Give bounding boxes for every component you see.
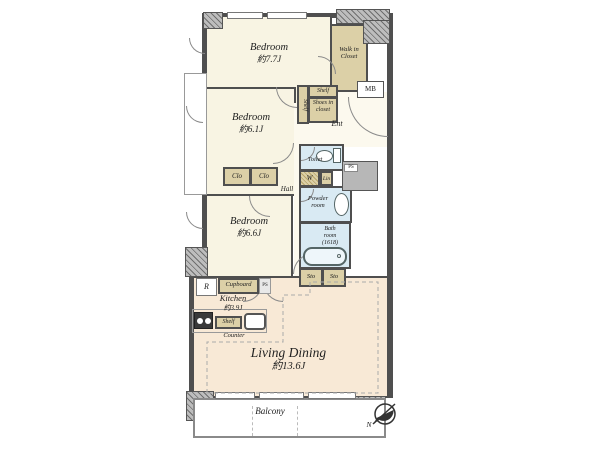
bedroom3-room <box>205 194 293 282</box>
balcony-area <box>193 398 386 438</box>
casement-window-arc-1 <box>189 38 205 54</box>
pipe-shaft-block <box>342 161 378 191</box>
meter-box <box>357 81 384 98</box>
closet2-box <box>250 167 278 186</box>
window-top-1 <box>227 12 263 19</box>
column-top-left <box>203 12 223 29</box>
closet1-box <box>223 167 251 186</box>
floor-plan: Bedroom 約7.7J Walk in Closet Bedroom 約6.… <box>0 0 600 450</box>
living-dining-dashed-boundary <box>192 276 389 398</box>
kitchen-shelf-box <box>215 316 242 329</box>
linen-box <box>320 171 333 186</box>
toilet-tank-icon <box>333 148 341 163</box>
column-left-mid <box>185 247 208 277</box>
balcony-divider-2 <box>297 406 298 436</box>
washer-space <box>299 170 320 187</box>
stove-icon <box>194 312 213 329</box>
shoes-in-closet-box <box>308 97 338 123</box>
balcony-divider-1 <box>252 406 253 436</box>
bathtub-drain-icon <box>337 254 341 258</box>
stove-burner-icon <box>197 318 203 324</box>
cupboard-box <box>218 278 259 294</box>
toilet-bowl-icon <box>316 150 333 162</box>
window-top-2 <box>267 12 307 19</box>
refrigerator-space <box>196 278 217 296</box>
sink-icon <box>244 313 266 330</box>
stove-burner-icon <box>205 318 211 324</box>
north-compass-icon <box>366 399 402 435</box>
service-balcony <box>184 73 207 195</box>
casement-window-arc-3 <box>186 212 203 229</box>
column-top-right-b <box>363 20 390 44</box>
pipe-space-kitchen-box <box>259 278 271 294</box>
powder-sink-icon <box>334 193 349 216</box>
